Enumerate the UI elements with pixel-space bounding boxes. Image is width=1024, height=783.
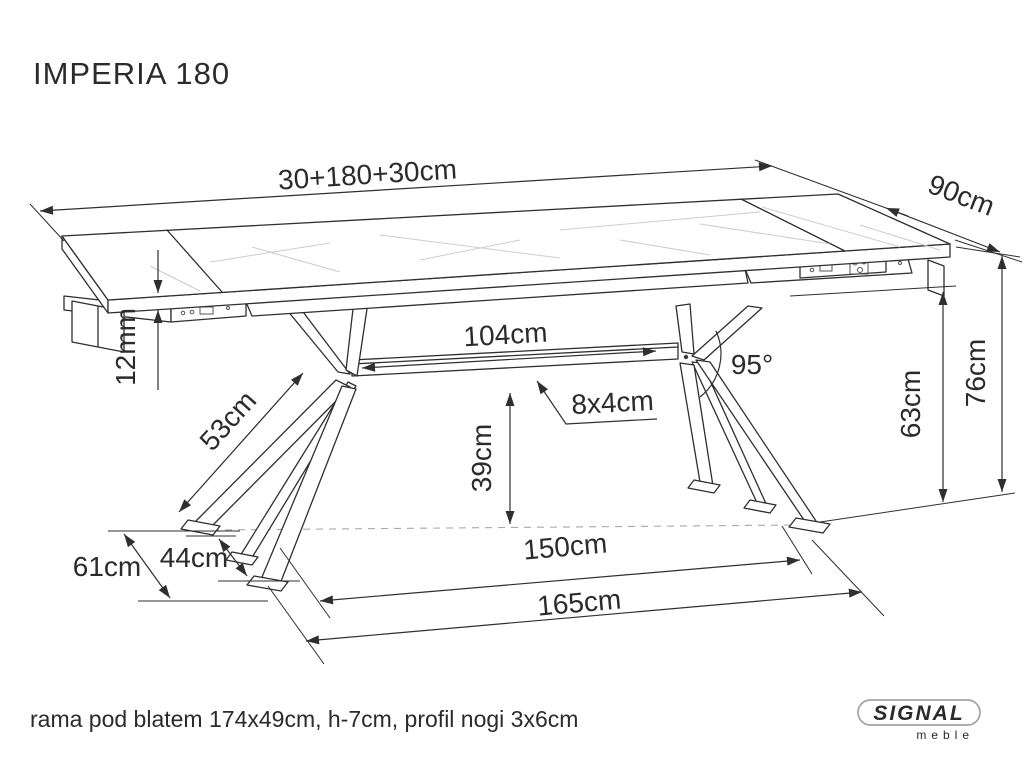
beam-bolt-right — [684, 355, 688, 359]
floor-baseline-right — [800, 493, 1015, 525]
dim-label-beam-height: 39cm — [466, 424, 497, 492]
dim-label-depth: 90cm — [924, 168, 999, 221]
dim-label-base-depth-inner: 44cm — [160, 542, 228, 573]
right-foot-front — [789, 518, 830, 533]
signal-wordmark: SIGNAL — [873, 702, 964, 725]
dim-label-top-thickness: 12mm — [110, 308, 141, 386]
ext-line — [955, 240, 1022, 262]
dim-label-leg-length: 53cm — [194, 385, 263, 457]
dim-label-total-length: 30+180+30cm — [277, 153, 458, 195]
dim-label-span-inner: 150cm — [522, 527, 608, 565]
page-title: IMPERIA 180 — [33, 56, 230, 91]
dim-label-base-depth-outer: 61cm — [73, 551, 141, 582]
right-foot-far — [744, 500, 776, 513]
dim-label-leg-angle: 95° — [731, 349, 773, 380]
frame-spec-note: rama pod blatem 174x49cm, h-7cm, profil … — [30, 706, 578, 732]
dim-label-span-outer: 165cm — [536, 583, 622, 621]
dim-table-height: 76cm — [956, 247, 1020, 492]
floor-lines — [212, 493, 1015, 530]
brand-logo: SIGNAL meble — [858, 700, 980, 742]
ext-line — [956, 247, 1020, 257]
right-leg-assembly — [680, 360, 830, 533]
dim-beam-height: 39cm — [466, 393, 510, 524]
right-foot-back — [688, 480, 720, 493]
right-bracket — [928, 260, 944, 296]
ext-line — [782, 526, 812, 574]
dim-label-beam-profile: 8x4cm — [571, 385, 655, 420]
technical-drawing-page: IMPERIA 180 — [0, 0, 1024, 783]
ext-line — [812, 540, 884, 616]
meble-wordmark: meble — [916, 728, 974, 742]
right-arm-a — [676, 304, 694, 354]
dim-underside-height: 63cm — [790, 286, 956, 502]
dim-beam-profile: 8x4cm — [537, 381, 657, 424]
table-dimension-diagram: IMPERIA 180 — [0, 0, 1024, 783]
dim-label-beam-length: 104cm — [463, 317, 549, 353]
dim-label-underside-height: 63cm — [895, 370, 926, 438]
dim-label-table-height: 76cm — [960, 339, 991, 407]
